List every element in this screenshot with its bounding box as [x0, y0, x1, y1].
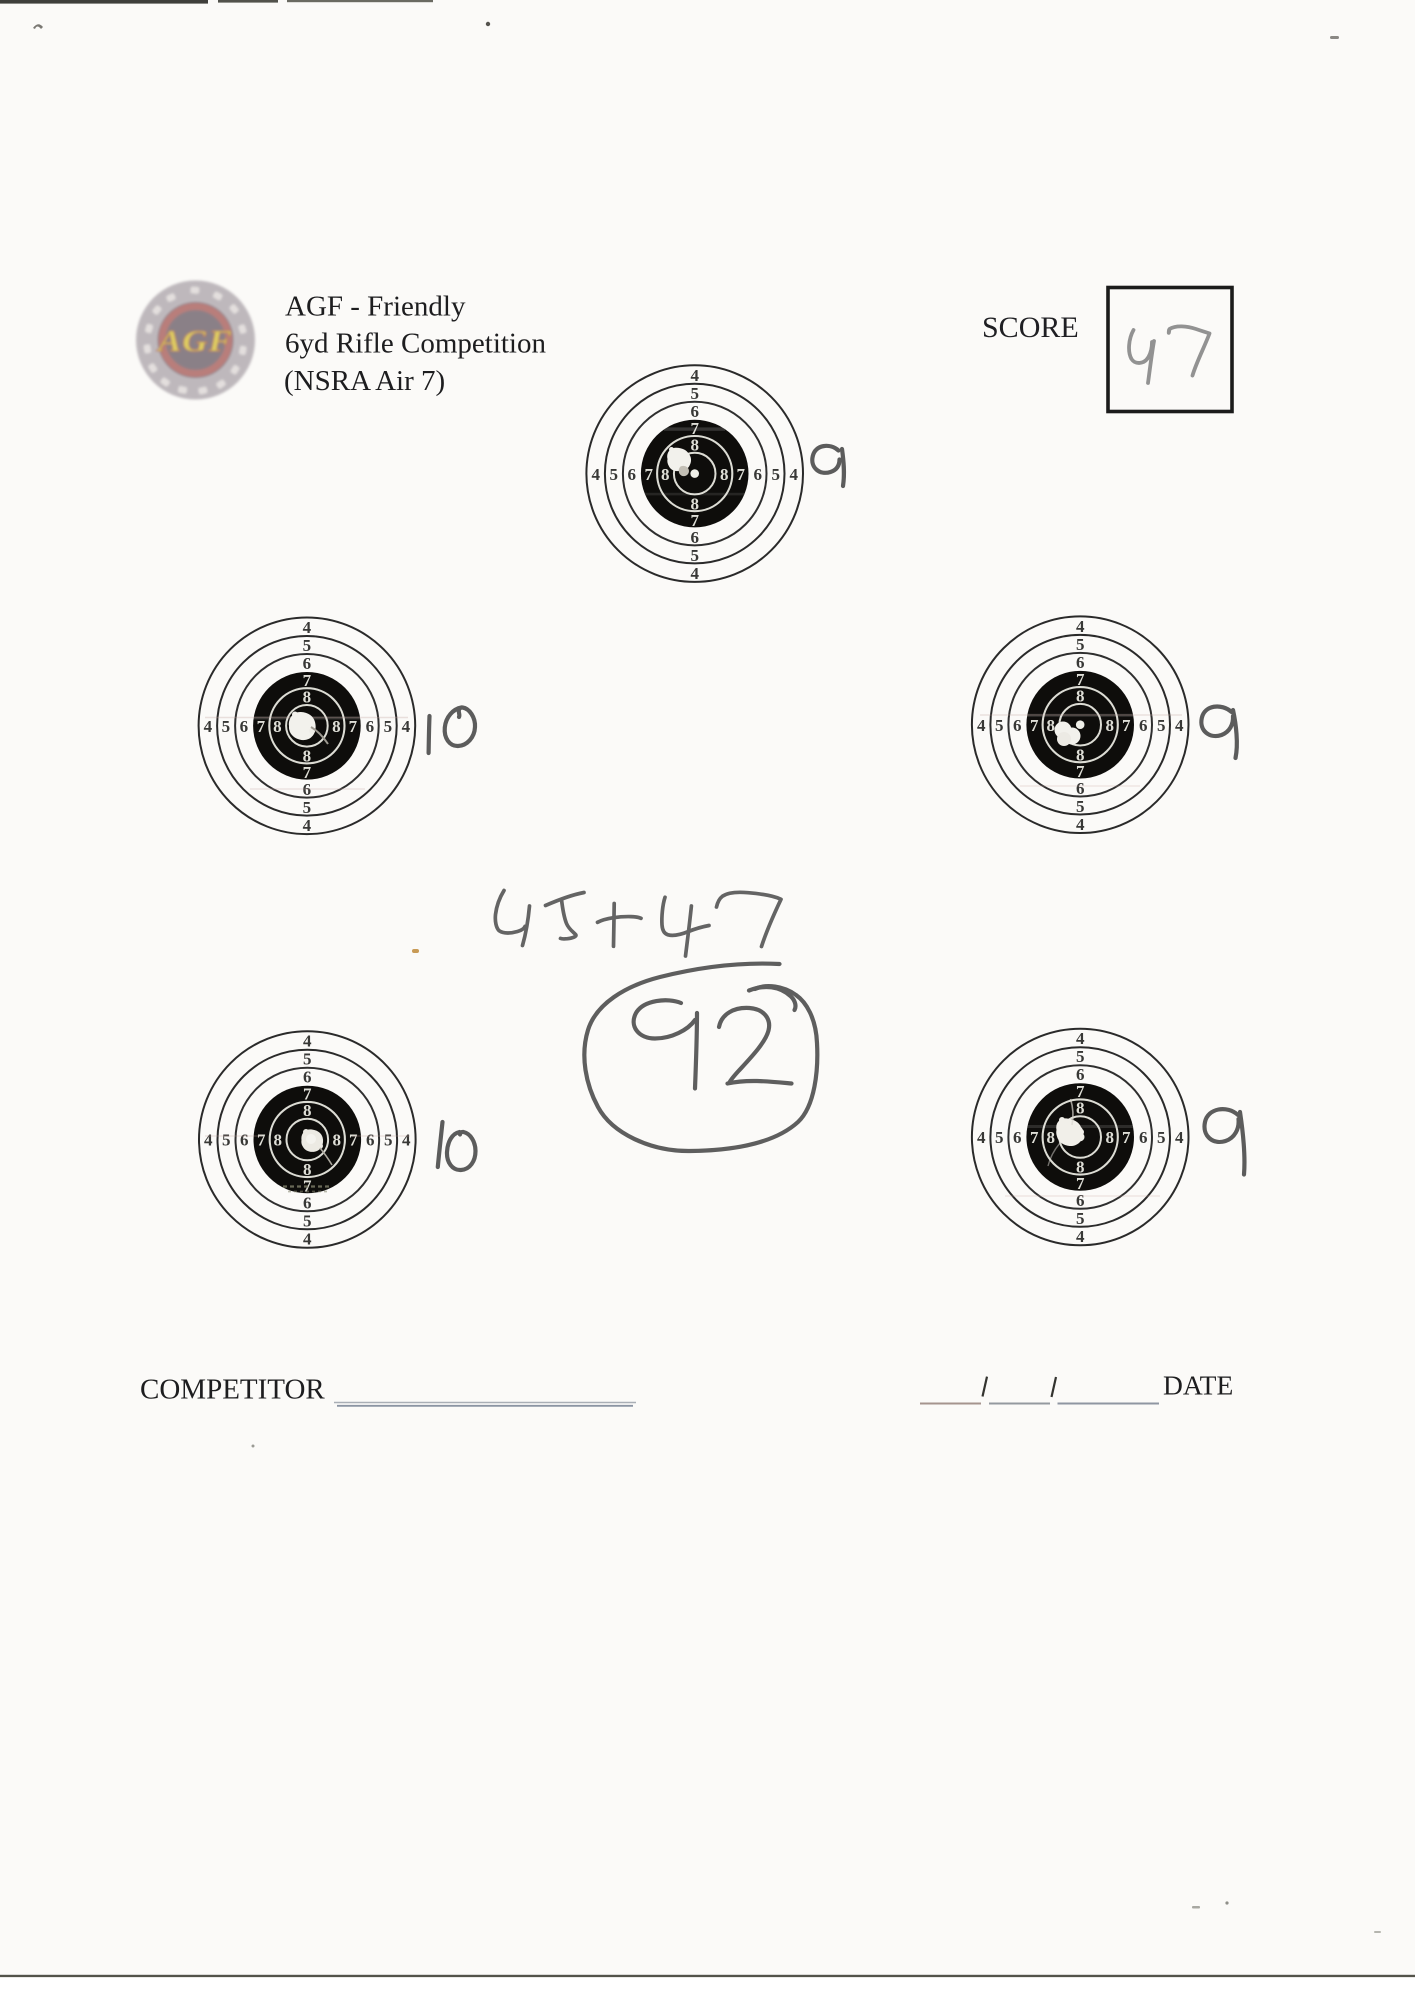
svg-text:6yd Rifle Competition: 6yd Rifle Competition — [285, 328, 546, 360]
svg-text:SCORE: SCORE — [982, 311, 1079, 344]
svg-text:AGF: AGF — [156, 325, 233, 359]
svg-text:COMPETITOR: COMPETITOR — [140, 1374, 325, 1406]
svg-text:(NSRA Air 7): (NSRA Air 7) — [284, 365, 445, 397]
svg-text:AGF - Friendly: AGF - Friendly — [285, 291, 466, 323]
svg-text:DATE: DATE — [1163, 1370, 1233, 1401]
